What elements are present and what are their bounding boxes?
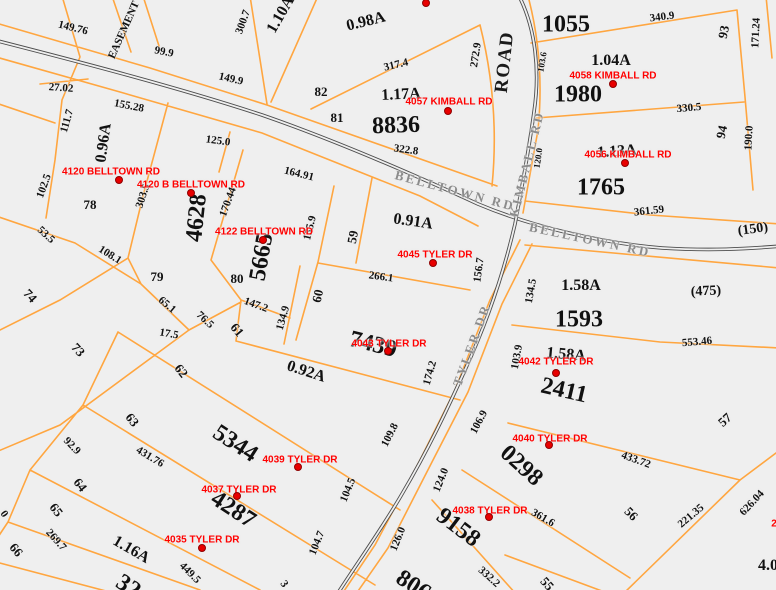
map-label-lot: 64: [70, 475, 91, 495]
map-label-dimsm: 103.6: [535, 51, 548, 73]
map-label-dim: 149.76: [57, 19, 89, 38]
map-label-dim: 0: [0, 508, 10, 519]
map-label-dim: 272.9: [468, 42, 484, 68]
map-label-dim: 102.5: [34, 172, 54, 199]
parcel-point-dot[interactable]: [545, 441, 553, 449]
map-label-road: BELLTOWN RD: [528, 219, 653, 260]
map-label-acre: 1.04A: [591, 52, 631, 70]
map-label-dim: 124.0: [431, 466, 451, 493]
map-label-lot: 56: [621, 504, 642, 525]
parcel-point-dot[interactable]: [384, 347, 392, 355]
map-label-parcel: 1593: [555, 307, 603, 334]
map-label-parcel: 806: [391, 565, 436, 590]
map-label-parcel: 1765: [577, 175, 625, 202]
parcel-point-dot[interactable]: [115, 176, 123, 184]
map-label-dim: 361.6: [529, 507, 556, 530]
parcel-point-dot[interactable]: [429, 259, 437, 267]
map-label-dim: 92.9: [61, 435, 83, 457]
map-label-parcel: 2411: [538, 373, 590, 410]
map-label-lot: 65: [46, 500, 67, 520]
map-label-lot: 78: [84, 197, 97, 213]
parcel-point-dot[interactable]: [259, 236, 267, 244]
map-label-dim: 266.1: [368, 269, 394, 284]
map-label-lot: 61: [227, 320, 248, 340]
map-label-dim: 17.5: [158, 326, 179, 341]
address-label: 4042 TYLER DR: [518, 357, 593, 368]
map-label-lot: 81: [331, 110, 344, 126]
map-label-dim: 99.9: [153, 44, 174, 59]
map-label-dim: 134.5: [523, 278, 539, 304]
parcel-point-dot[interactable]: [198, 544, 206, 552]
map-label-parcel: 5344: [208, 420, 263, 469]
map-label-dim: 156.7: [471, 257, 486, 283]
map-label-lot: 60: [309, 288, 327, 304]
map-label-dim: 53.5: [35, 224, 57, 246]
address-label: 4056 KIMBALL RD: [584, 150, 671, 161]
parcel-point-dot[interactable]: [444, 107, 452, 115]
map-label-dim: 174.2: [421, 359, 439, 386]
map-label-lot: 82: [315, 84, 328, 100]
map-label-dim: 221.35: [676, 502, 707, 531]
map-label-dim: 147.2: [242, 295, 269, 315]
map-label-acre: 0.91A: [392, 210, 434, 233]
map-label-roadbig: ROAD: [491, 30, 519, 94]
parcel-point-dot[interactable]: [294, 463, 302, 471]
parcel-point-dot[interactable]: [609, 80, 617, 88]
map-label-acre: 0.92A: [284, 357, 327, 386]
map-label-acre: 1.10A: [263, 0, 298, 37]
map-label-road: TYLER DR: [450, 301, 495, 388]
parcel-point-dot[interactable]: [485, 513, 493, 521]
address-label: 2: [771, 519, 776, 530]
map-label-dim: 431.76: [134, 444, 166, 470]
map-label-road: BELLTOWN RD: [393, 167, 517, 215]
map-label-dim: 300.7: [233, 8, 253, 35]
map-label-parcel: 0298: [494, 440, 548, 492]
map-label-dim: 626.04: [737, 488, 766, 518]
map-label-dimsm: 120.0: [532, 147, 545, 168]
map-label-lot: 79: [151, 269, 164, 285]
map-label-dim: 330.5: [676, 101, 702, 115]
map-label-parcel: 8836: [372, 112, 421, 141]
map-label-dim: 3: [278, 578, 291, 589]
map-label-parcel: 1055: [542, 12, 590, 39]
map-label-parcel: 1980: [554, 82, 602, 109]
map-label-dim: 190.0: [742, 125, 755, 150]
map-label-dim: EASEMENT: [106, 0, 142, 61]
map-canvas[interactable]: 149.76EASEMENT99.9149.927.02155.28111.70…: [0, 0, 776, 590]
map-label-lot: 59: [344, 229, 362, 245]
map-label-acre: 0.96A: [92, 122, 115, 164]
map-label-parcel: 4628: [181, 193, 213, 244]
address-label: 4120 BELLTOWN RD: [62, 167, 160, 178]
map-label-lot: 66: [6, 540, 27, 560]
map-label-lot: 80: [231, 271, 244, 287]
map-label-lot: 93: [715, 24, 733, 40]
map-label-dim: 109.8: [379, 421, 401, 449]
map-label-dim: 340.9: [649, 10, 675, 25]
map-label-lot: 55: [537, 574, 558, 590]
parcel-point-dot[interactable]: [233, 492, 241, 500]
map-label-dim: 111.7: [58, 108, 76, 134]
map-label-parcel: 32: [111, 569, 146, 590]
map-label-layer: 149.76EASEMENT99.9149.927.02155.28111.70…: [0, 0, 776, 590]
map-label-dim: 433.72: [620, 449, 653, 471]
map-label-dim: 125.0: [205, 133, 231, 148]
map-label-dim: 108.1: [96, 243, 123, 266]
map-label-dim: 361.59: [633, 203, 664, 218]
map-label-dim: 27.02: [48, 81, 74, 95]
map-label-acre: 4.0: [758, 557, 776, 575]
map-label-dim: 164.91: [283, 165, 315, 184]
map-label-dim: 104.7: [307, 529, 327, 556]
map-label-dim: 126.0: [388, 525, 408, 552]
map-label-acre: 1.58A: [561, 277, 601, 295]
map-label-acre: 0.98A: [345, 8, 388, 35]
map-label-dim: 65.1: [156, 294, 178, 316]
parcel-point-dot[interactable]: [422, 0, 430, 7]
map-label-dim: 134.9: [274, 304, 292, 331]
parcel-point-dot[interactable]: [552, 369, 560, 377]
parcel-point-dot[interactable]: [621, 159, 629, 167]
map-label-dim: 170.44: [217, 186, 239, 219]
map-label-dim: 269.7: [43, 527, 68, 553]
map-label-paren: (475): [690, 283, 721, 301]
map-label-dim: 553.46: [681, 335, 712, 350]
parcel-point-dot[interactable]: [187, 189, 195, 197]
map-label-lot: 73: [68, 340, 89, 360]
map-label-dim: 104.5: [338, 476, 358, 503]
map-label-dim: 449.5: [177, 560, 203, 586]
map-label-paren: (150): [737, 220, 769, 240]
map-label-dim: 317.4: [383, 56, 410, 73]
map-label-dim: 76.5: [194, 309, 216, 331]
map-label-dim: 149.9: [218, 70, 245, 87]
map-label-lot: 94: [713, 124, 731, 140]
map-label-dim: 106.9: [468, 408, 490, 435]
map-label-dim: 332.2: [476, 564, 502, 589]
map-label-dim: 322.8: [393, 142, 419, 157]
address-label: 4057 KIMBALL RD: [405, 97, 492, 108]
map-label-lot: 74: [20, 286, 41, 306]
map-label-dim: 171.24: [749, 18, 763, 49]
map-label-dim: 155.28: [113, 97, 145, 115]
map-label-lot: 63: [122, 410, 143, 430]
map-label-acre: 1.16A: [109, 532, 152, 567]
map-label-lot: 57: [715, 410, 735, 431]
map-label-lot: 62: [171, 361, 192, 381]
